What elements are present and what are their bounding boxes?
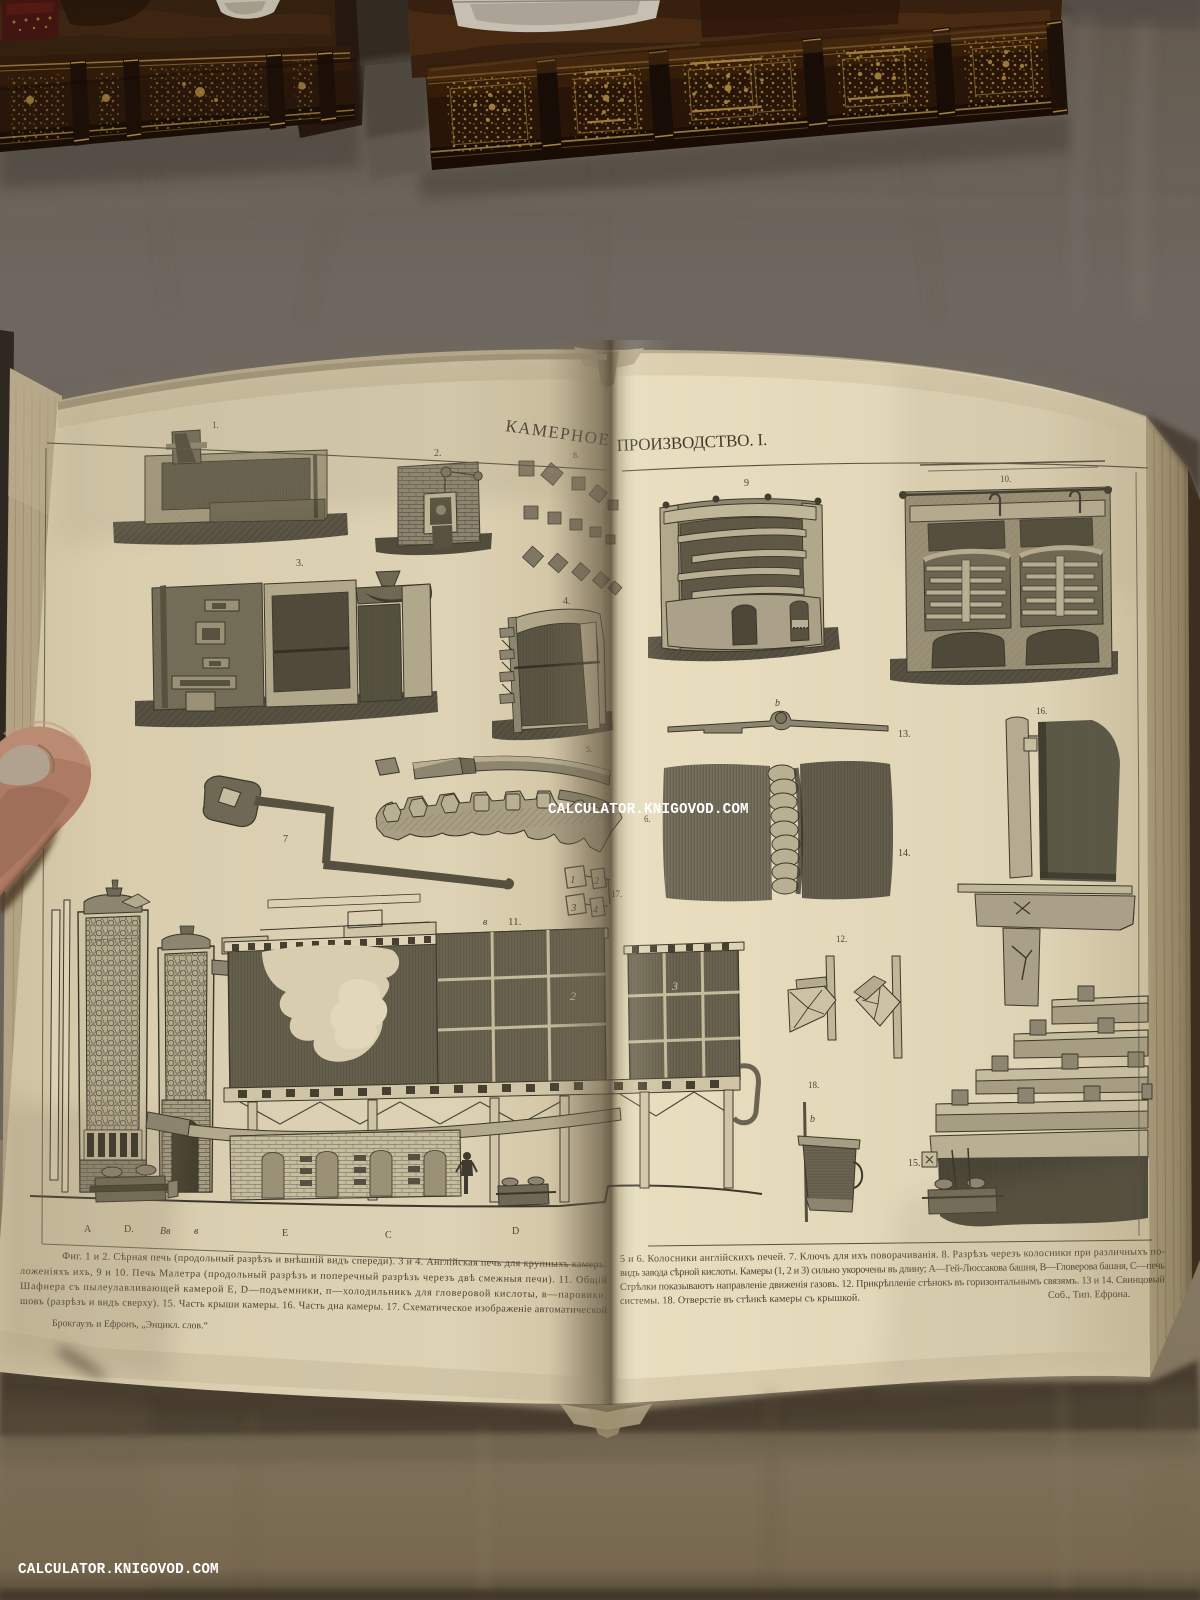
svg-text:CALCULATOR.KNIGOVOD.COM: CALCULATOR.KNIGOVOD.COM — [548, 802, 749, 818]
svg-text:11.: 11. — [508, 916, 522, 928]
svg-text:15.: 15. — [908, 1158, 921, 1169]
svg-text:С: С — [385, 1230, 392, 1241]
svg-text:12.: 12. — [836, 934, 847, 944]
svg-text:14.: 14. — [898, 848, 911, 859]
svg-text:D: D — [512, 1226, 519, 1237]
svg-text:18.: 18. — [808, 1080, 819, 1090]
svg-text:b: b — [775, 698, 780, 709]
svg-text:CALCULATOR.KNIGOVOD.COM: CALCULATOR.KNIGOVOD.COM — [18, 1562, 219, 1578]
svg-text:b: b — [810, 1114, 815, 1125]
svg-text:7: 7 — [283, 834, 288, 845]
svg-text:13.: 13. — [898, 729, 911, 740]
svg-text:в: в — [194, 1226, 199, 1237]
svg-text:3.: 3. — [296, 558, 304, 569]
svg-text:9: 9 — [744, 478, 749, 489]
svg-text:в: в — [483, 917, 488, 928]
svg-text:Е: Е — [282, 1228, 288, 1239]
svg-text:16.: 16. — [1036, 706, 1047, 716]
